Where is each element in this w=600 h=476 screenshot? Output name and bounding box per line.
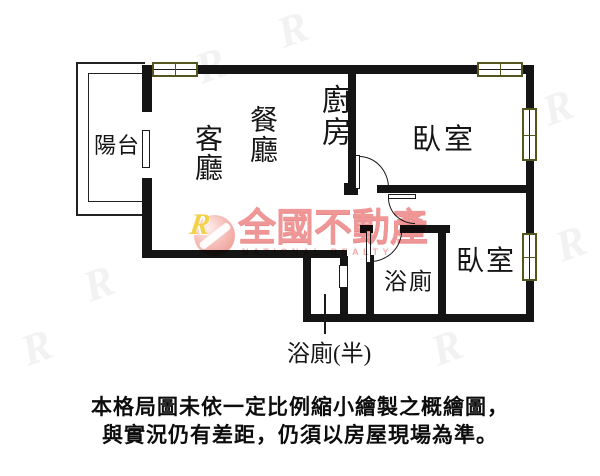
- room-label-bathroom: 浴廁: [384, 262, 434, 296]
- wall-halfbath-right-lower: [340, 287, 348, 322]
- window-right-upper: [522, 108, 537, 161]
- window-right-lower: [522, 233, 537, 281]
- ghost-watermark: R: [548, 215, 593, 273]
- realty-watermark: R 全國不動產 NATIONAL REALTY: [178, 205, 448, 263]
- wall-bath-left: [366, 255, 374, 322]
- ghost-watermark: R: [270, 1, 315, 59]
- wall-right: [526, 65, 534, 322]
- ghost-watermark: R: [535, 79, 580, 137]
- window-top-left: [152, 62, 198, 77]
- room-label-bedroom-bottom: 臥室: [456, 239, 516, 279]
- ghost-watermark: R: [76, 255, 121, 313]
- disclaimer-line-2: 與實況仍有差距，仍須以房屋現場為準。: [0, 419, 600, 449]
- wall-left-lower: [142, 180, 152, 258]
- wall-endcap: [142, 178, 152, 180]
- wall-bottom: [303, 314, 534, 322]
- wall-top: [142, 65, 534, 74]
- room-label-bedroom-top: 臥室: [412, 116, 476, 158]
- halfbath-door-panel: [339, 265, 348, 288]
- window-top-right: [477, 62, 523, 77]
- room-label-living-room: 客廳: [186, 124, 226, 182]
- room-label-half-bathroom: 浴廁(半): [287, 334, 371, 368]
- watermark-brand-name: 全國不動產: [238, 209, 428, 247]
- floor-plan-image: R R R R R R R 陽台 客廳 餐廳 廚房 臥室 臥室 浴廁 浴廁(半: [0, 0, 600, 476]
- disclaimer-line-1: 本格局圖未依一定比例縮小繪製之概繪圖，: [0, 391, 600, 421]
- room-label-balcony: 陽台: [94, 128, 140, 160]
- room-label-kitchen: 廚房: [311, 84, 355, 148]
- halfbath-leader-line: [324, 294, 326, 334]
- wall-endcap: [142, 110, 152, 112]
- wall-left-upper: [142, 65, 152, 110]
- bedroom1-door-arc: [359, 156, 389, 188]
- ghost-watermark: R: [424, 319, 469, 377]
- balcony-door-panel: [142, 130, 150, 168]
- ghost-watermark: R: [14, 319, 59, 377]
- room-label-dining-room: 餐廳: [241, 105, 281, 165]
- wall-bedroom1-bottom: [377, 185, 534, 193]
- watermark-brand-name-en: NATIONAL REALTY: [242, 247, 393, 257]
